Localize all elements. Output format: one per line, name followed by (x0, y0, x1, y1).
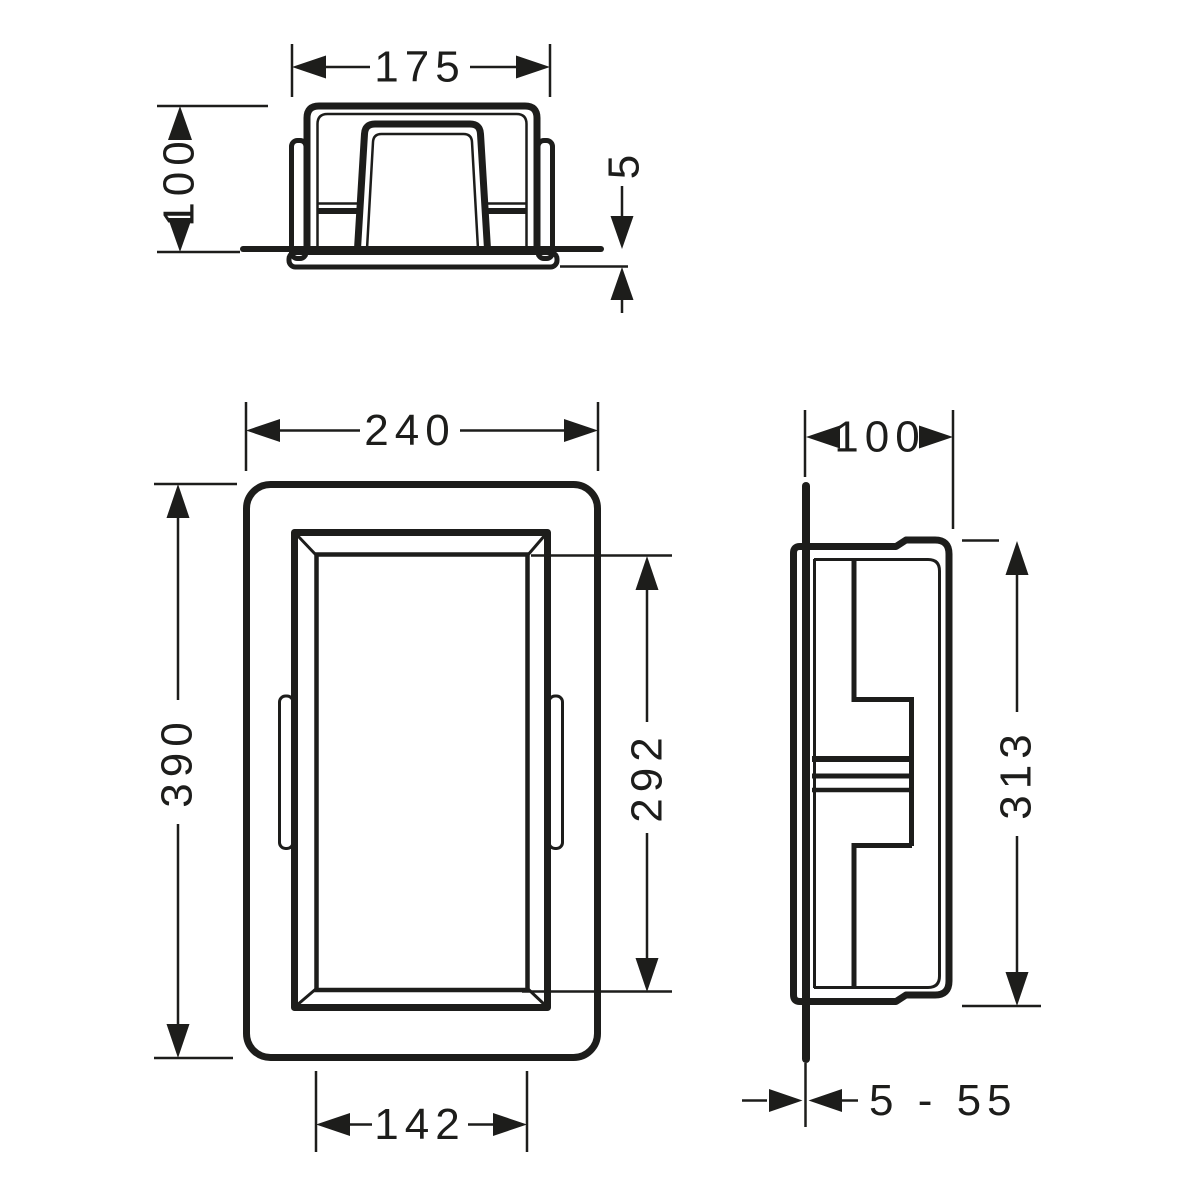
dim-front-opening-height-arrow-top (636, 556, 659, 590)
dim-front-width-arrow-left (246, 419, 280, 442)
dim-front-height: 390 (153, 484, 238, 1058)
dim-side-depth: 100 (805, 410, 953, 529)
dim-front-width: 240 (246, 402, 598, 471)
side-view-body-outline (794, 540, 950, 1002)
dim-top-depth-arrow-top (168, 106, 192, 140)
top-view-flange-plate (289, 253, 557, 268)
dim-front-height-arrow-bottom (167, 1024, 190, 1058)
dim-side-body-height-arrow-bottom (1006, 972, 1029, 1006)
dim-side-body-height-arrow-top (1006, 541, 1029, 575)
dim-front-height-arrow-top (167, 484, 190, 518)
dim-label-side-depth: 100 (834, 413, 925, 462)
side-view: 100 313 5 - 55 (742, 410, 1041, 1127)
dim-label-top-depth: 100 (155, 135, 204, 226)
dim-label-side-wall-range: 5 - 55 (869, 1076, 1018, 1125)
dim-top-flange-arrow-down (611, 216, 634, 249)
dim-top-flange-arrow-up (611, 267, 634, 300)
dimension-drawing-svg: 175 100 5 (0, 0, 1197, 1197)
front-view-frame-outer (295, 533, 548, 1008)
dim-top-depth: 100 (155, 106, 269, 252)
top-view: 175 100 5 (155, 43, 649, 314)
dim-label-top-flange: 5 (600, 149, 649, 179)
dim-front-opening-height-arrow-bottom (636, 958, 659, 992)
dim-side-wall-range-arrow-right (809, 1089, 843, 1112)
dim-side-wall-range-arrow-left (769, 1089, 803, 1112)
dim-side-body-height: 313 (962, 541, 1041, 1007)
dim-label-top-width: 175 (374, 43, 465, 92)
dim-front-opening-width: 142 (316, 1071, 527, 1152)
dim-front-opening-width-arrow-right (493, 1113, 527, 1136)
dim-label-front-width: 240 (364, 406, 455, 455)
dim-top-width-arrow-left (292, 56, 326, 79)
dim-top-width-arrow-right (516, 56, 550, 79)
dim-front-opening-width-arrow-left (316, 1113, 350, 1136)
dim-label-front-opening-width: 142 (374, 1100, 465, 1149)
front-view: 240 390 292 (153, 402, 673, 1152)
technical-drawing-page: 175 100 5 (0, 0, 1197, 1197)
dim-front-width-arrow-right (564, 419, 598, 442)
dim-top-flange: 5 (560, 149, 649, 313)
top-view-protrusion-outline (358, 124, 488, 249)
dim-label-side-body-height: 313 (992, 728, 1041, 819)
dim-label-front-height: 390 (153, 716, 202, 807)
dim-side-wall-range: 5 - 55 (742, 1076, 1018, 1125)
dim-label-front-opening-height: 292 (623, 731, 672, 822)
dim-top-width: 175 (292, 43, 550, 98)
